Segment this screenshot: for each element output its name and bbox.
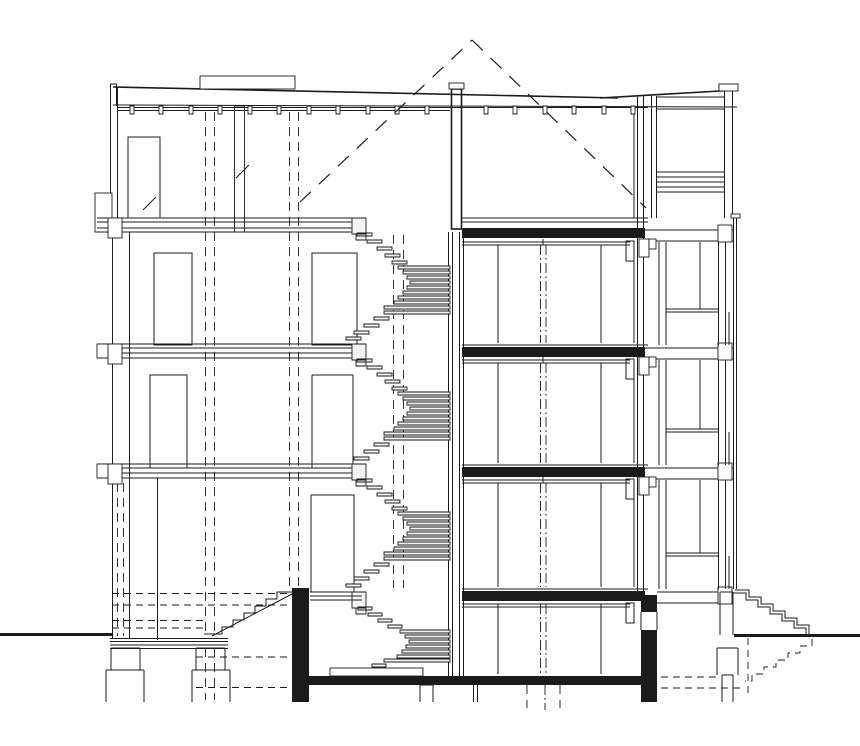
rooflight-curb bbox=[200, 76, 295, 89]
top-floor-window bbox=[128, 137, 160, 218]
hall-floor-slab bbox=[309, 676, 645, 685]
right-facade-mullions bbox=[498, 96, 644, 674]
apex-dashes bbox=[300, 40, 646, 208]
right-cut-slabs bbox=[462, 218, 733, 623]
right-wall-cut-lower bbox=[641, 630, 657, 702]
entry-wall-cut bbox=[292, 588, 309, 702]
joist-rail bbox=[118, 108, 648, 111]
spiral-stair bbox=[330, 218, 450, 676]
grade-line-left bbox=[0, 633, 112, 636]
building-section bbox=[0, 0, 860, 746]
basement-steps-dashed bbox=[745, 638, 812, 695]
right-wall-cut-upper bbox=[641, 595, 657, 612]
loggias bbox=[659, 242, 729, 589]
terrace-louvers bbox=[657, 172, 724, 192]
grade-line-right bbox=[734, 634, 860, 637]
center-spine-wall bbox=[449, 83, 465, 676]
section-drawing-canvas bbox=[0, 0, 860, 746]
paving bbox=[110, 639, 228, 649]
left-floor-slabs bbox=[97, 218, 352, 484]
roof-terrace bbox=[652, 91, 733, 218]
exterior-steps-right bbox=[733, 590, 809, 634]
outer-screen bbox=[731, 214, 740, 589]
entry-steps bbox=[204, 592, 292, 636]
